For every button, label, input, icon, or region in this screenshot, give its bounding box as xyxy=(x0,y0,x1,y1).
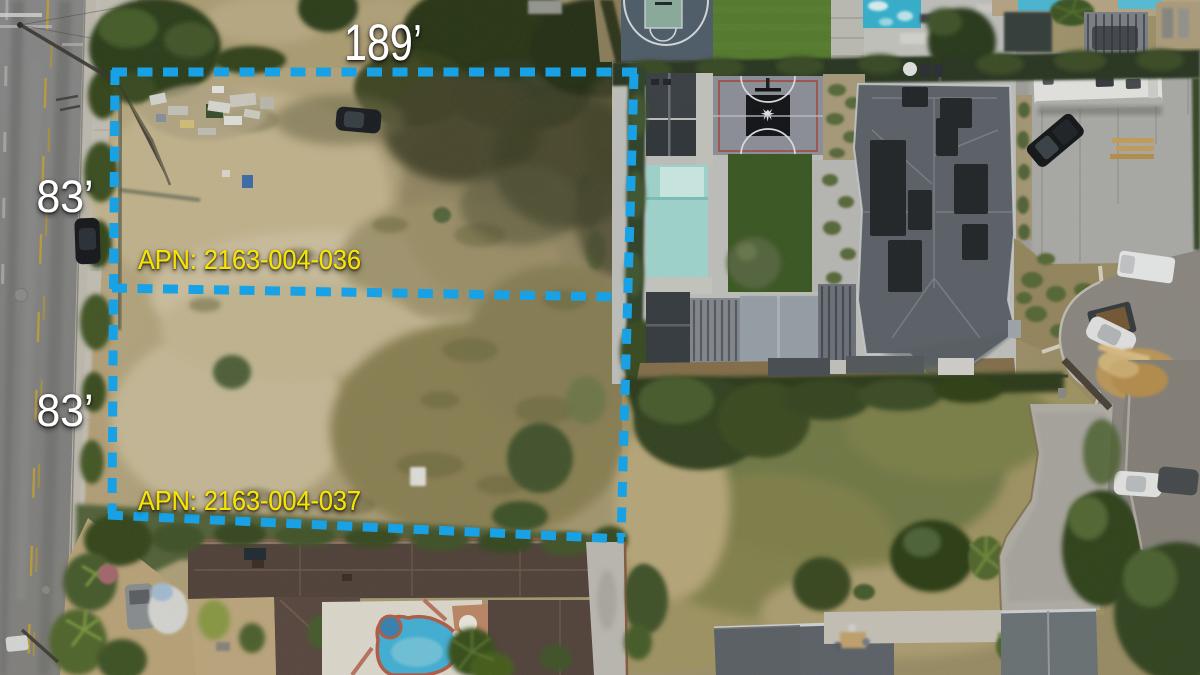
svg-text:APN: 2163-004-037: APN: 2163-004-037 xyxy=(138,485,361,516)
svg-text:APN: 2163-004-036: APN: 2163-004-036 xyxy=(138,244,361,275)
svg-text:83’: 83’ xyxy=(37,385,94,436)
svg-text:83’: 83’ xyxy=(37,171,94,222)
svg-text:189’: 189’ xyxy=(344,14,422,71)
